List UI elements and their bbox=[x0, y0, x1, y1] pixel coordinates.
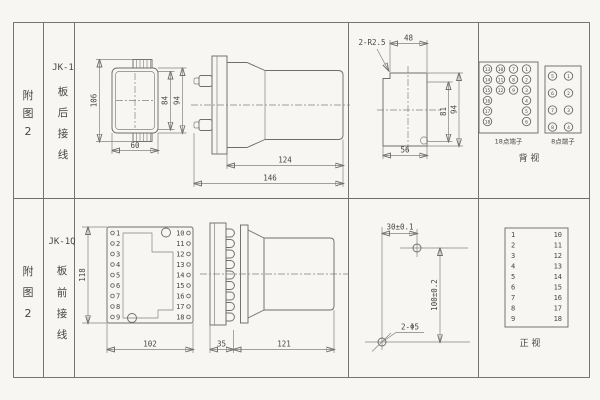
terminal-number: 11 bbox=[176, 240, 184, 248]
terminal-number: 3 bbox=[525, 88, 528, 94]
mount-char: 接 bbox=[58, 127, 69, 140]
terminal-number: 1 bbox=[116, 229, 120, 237]
terminal-number: 13 bbox=[485, 67, 491, 73]
terminal-number: 14 bbox=[176, 271, 184, 279]
mount-char: 线 bbox=[58, 148, 69, 161]
mount-char: 前 bbox=[57, 286, 68, 299]
terminal-number: 12 bbox=[176, 250, 184, 258]
hole-note: 2-Φ5 bbox=[401, 323, 419, 332]
terminal-grid-8: 5 1 6 2 7 3 8 4 bbox=[548, 72, 572, 131]
table-number: 4 bbox=[511, 263, 515, 271]
table-number: 6 bbox=[511, 284, 515, 292]
terminal-number: 2 bbox=[116, 240, 120, 248]
front-view-label: 正 视 bbox=[520, 337, 541, 349]
terminal-number: 7 bbox=[116, 292, 120, 300]
table-number: 12 bbox=[554, 252, 562, 260]
jk1q-front-view-drawing: 1 2 3 4 5 6 7 8 9 10 11 12 13 14 15 16 1… bbox=[78, 227, 193, 353]
mount-char: 线 bbox=[57, 328, 68, 341]
dim-label-121: 121 bbox=[277, 340, 291, 349]
jk1-side-view-drawing: 124 146 bbox=[191, 56, 350, 187]
dim-label-146: 146 bbox=[263, 174, 277, 183]
fig-char: 2 bbox=[25, 307, 32, 320]
terminal-number: 3 bbox=[567, 108, 570, 114]
dim-label-106: 106 bbox=[90, 93, 99, 107]
fig-char: 2 bbox=[25, 125, 32, 138]
terminal-number: 16 bbox=[485, 98, 491, 104]
terminal-number: 1 bbox=[525, 67, 528, 73]
dim-label-118: 118 bbox=[78, 268, 87, 282]
terminal-number: 3 bbox=[116, 250, 120, 258]
dim-label-56: 56 bbox=[400, 146, 410, 155]
jk1-rear-outline-drawing: 106 84 94 60 bbox=[90, 60, 187, 155]
terminal-number: 8 bbox=[116, 303, 120, 311]
terminal-number: 15 bbox=[176, 282, 184, 290]
terminal-number: 5 bbox=[116, 271, 120, 279]
label-18-point: 18点端子 bbox=[495, 137, 523, 146]
terminal-table-front: 1 2 3 4 5 6 7 8 9 10 11 12 13 14 15 16 1… bbox=[505, 228, 568, 349]
mount-char: 板 bbox=[57, 264, 68, 277]
dim-label-60: 60 bbox=[130, 141, 140, 150]
table-number: 3 bbox=[511, 252, 515, 260]
terminal-number: 14 bbox=[485, 77, 491, 83]
table-number: 7 bbox=[511, 294, 515, 302]
label-8-point: 8点端子 bbox=[551, 137, 575, 146]
table-number: 14 bbox=[554, 273, 562, 281]
terminal-grid-18: 13 10 7 1 14 11 8 2 15 12 9 3 16 4 17 5 … bbox=[483, 65, 530, 126]
figure-label-top: 附 图 2 bbox=[23, 88, 34, 138]
table-number: 18 bbox=[554, 315, 562, 323]
terminal-number: 4 bbox=[567, 125, 570, 131]
model-label-top: JK-1 板 后 接 线 bbox=[52, 63, 74, 161]
terminal-number: 11 bbox=[498, 77, 504, 83]
model-name: JK-1 bbox=[52, 63, 74, 73]
figure-label-bottom: 附 图 2 bbox=[23, 264, 34, 320]
terminal-number: 4 bbox=[116, 261, 120, 269]
terminal-number: 2 bbox=[525, 77, 528, 83]
figure-sheet: 附 图 2 JK-1 板 后 接 线 106 84 94 60 bbox=[0, 0, 600, 400]
drilling-plan-drawing: 30±0.1 100±0.2 2-Φ5 bbox=[365, 223, 470, 352]
table-number: 8 bbox=[511, 305, 515, 313]
dim-label-81: 81 bbox=[439, 107, 448, 116]
mount-char: 后 bbox=[58, 107, 69, 119]
dim-label-100: 100±0.2 bbox=[430, 279, 439, 311]
panel-cutout-drawing: 2-R2.5 48 81 94 56 bbox=[358, 34, 463, 160]
terminal-number: 10 bbox=[498, 67, 504, 73]
terminal-number: 5 bbox=[525, 109, 528, 115]
terminal-number: 9 bbox=[116, 313, 120, 321]
terminal-number: 18 bbox=[176, 313, 184, 321]
dim-label-35: 35 bbox=[217, 340, 226, 349]
terminal-number: 16 bbox=[176, 292, 184, 300]
radius-note: 2-R2.5 bbox=[358, 38, 385, 47]
mount-char: 板 bbox=[58, 85, 69, 98]
terminal-number: 1 bbox=[567, 74, 570, 80]
terminal-layout-rear: 13 10 7 1 14 11 8 2 15 12 9 3 16 4 17 5 … bbox=[479, 62, 581, 164]
terminal-number: 7 bbox=[551, 108, 554, 114]
manual-page: 附 图 2 JK-1 板 后 接 线 106 84 94 60 bbox=[0, 0, 600, 400]
model-name: JK-1Q bbox=[48, 237, 75, 247]
rear-view-label: 背 视 bbox=[519, 152, 540, 164]
terminal-number: 9 bbox=[512, 88, 515, 94]
fig-char: 附 bbox=[23, 88, 34, 102]
terminal-number: 7 bbox=[512, 67, 515, 73]
table-number: 1 bbox=[511, 231, 515, 239]
jk1q-side-view-drawing: 35 121 bbox=[200, 223, 348, 353]
terminal-number: 10 bbox=[176, 229, 184, 237]
terminal-number: 2 bbox=[567, 91, 570, 97]
terminal-number: 17 bbox=[485, 109, 491, 115]
terminal-number: 18 bbox=[485, 119, 491, 125]
front-terminals: 1 2 3 4 5 6 7 8 9 10 11 12 13 14 15 16 1… bbox=[111, 229, 191, 321]
table-number: 9 bbox=[511, 315, 515, 323]
mount-char: 接 bbox=[57, 307, 68, 320]
table-number: 13 bbox=[554, 263, 562, 271]
dim-label-102: 102 bbox=[143, 340, 157, 349]
fig-char: 附 bbox=[23, 264, 34, 278]
dim-label-94b: 94 bbox=[450, 105, 459, 115]
table-number: 10 bbox=[554, 231, 562, 239]
terminal-number: 8 bbox=[512, 77, 515, 83]
terminal-number: 12 bbox=[498, 88, 504, 94]
fig-char: 图 bbox=[23, 107, 34, 120]
terminal-number: 4 bbox=[525, 98, 528, 104]
terminal-number: 13 bbox=[176, 261, 184, 269]
terminal-number: 8 bbox=[551, 125, 554, 131]
table-number: 5 bbox=[511, 273, 515, 281]
terminal-number: 6 bbox=[551, 91, 554, 97]
table-number: 2 bbox=[511, 242, 515, 250]
terminal-number: 6 bbox=[116, 282, 120, 290]
model-label-bottom: JK-1Q 板 前 接 线 bbox=[48, 237, 75, 341]
fig-char: 图 bbox=[23, 286, 34, 299]
dim-label-94: 94 bbox=[173, 96, 182, 106]
dim-label-124: 124 bbox=[278, 156, 292, 165]
dim-label-30: 30±0.1 bbox=[386, 223, 413, 232]
terminal-number: 17 bbox=[176, 303, 184, 311]
table-number: 17 bbox=[554, 305, 562, 313]
dim-label-48: 48 bbox=[404, 34, 414, 43]
table-number: 16 bbox=[554, 294, 562, 302]
terminal-number: 6 bbox=[525, 119, 528, 125]
dim-label-84: 84 bbox=[161, 96, 170, 106]
table-number: 11 bbox=[554, 242, 562, 250]
terminal-number: 5 bbox=[551, 74, 554, 80]
terminal-number: 15 bbox=[485, 88, 491, 94]
side-screw-row bbox=[226, 229, 234, 321]
table-number: 15 bbox=[554, 284, 562, 292]
